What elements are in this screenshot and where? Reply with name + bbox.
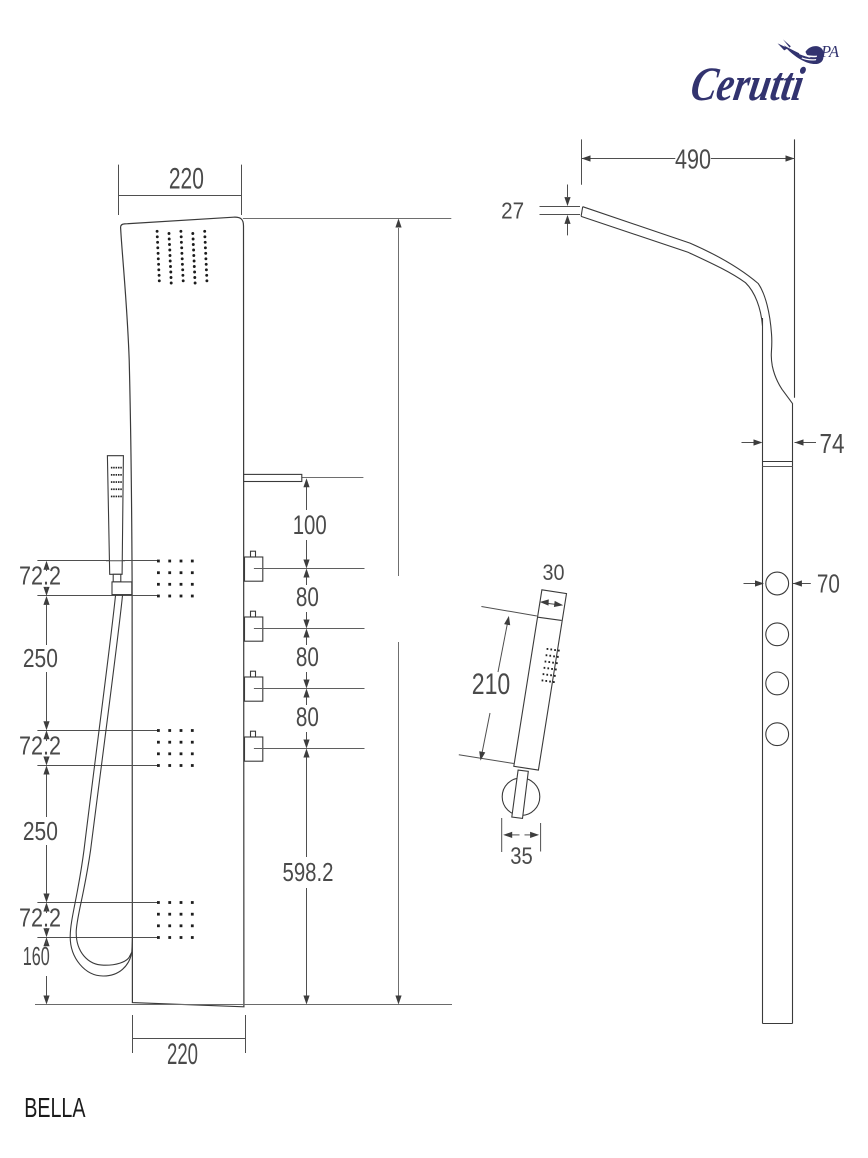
svg-text:72.2: 72.2 [19,903,61,933]
svg-text:598.2: 598.2 [283,857,334,887]
svg-text:160: 160 [23,941,50,971]
svg-text:80: 80 [296,702,319,732]
svg-text:74: 74 [820,428,845,459]
svg-text:30: 30 [543,560,565,585]
svg-text:PA: PA [820,42,840,61]
svg-text:80: 80 [296,582,319,612]
svg-text:250: 250 [23,816,58,846]
svg-text:70: 70 [817,569,840,599]
svg-text:250: 250 [23,643,58,673]
svg-text:72.2: 72.2 [19,731,61,761]
svg-text:Cerutti: Cerutti [687,58,809,111]
svg-text:490: 490 [675,143,711,174]
svg-text:220: 220 [169,163,204,196]
svg-text:220: 220 [167,1038,198,1071]
svg-text:35: 35 [510,843,533,870]
svg-text:BELLA: BELLA [24,1092,86,1123]
svg-text:27: 27 [501,198,524,224]
svg-text:80: 80 [296,642,319,672]
svg-text:210: 210 [472,668,511,701]
svg-text:100: 100 [293,510,327,540]
svg-text:72.2: 72.2 [19,561,61,591]
